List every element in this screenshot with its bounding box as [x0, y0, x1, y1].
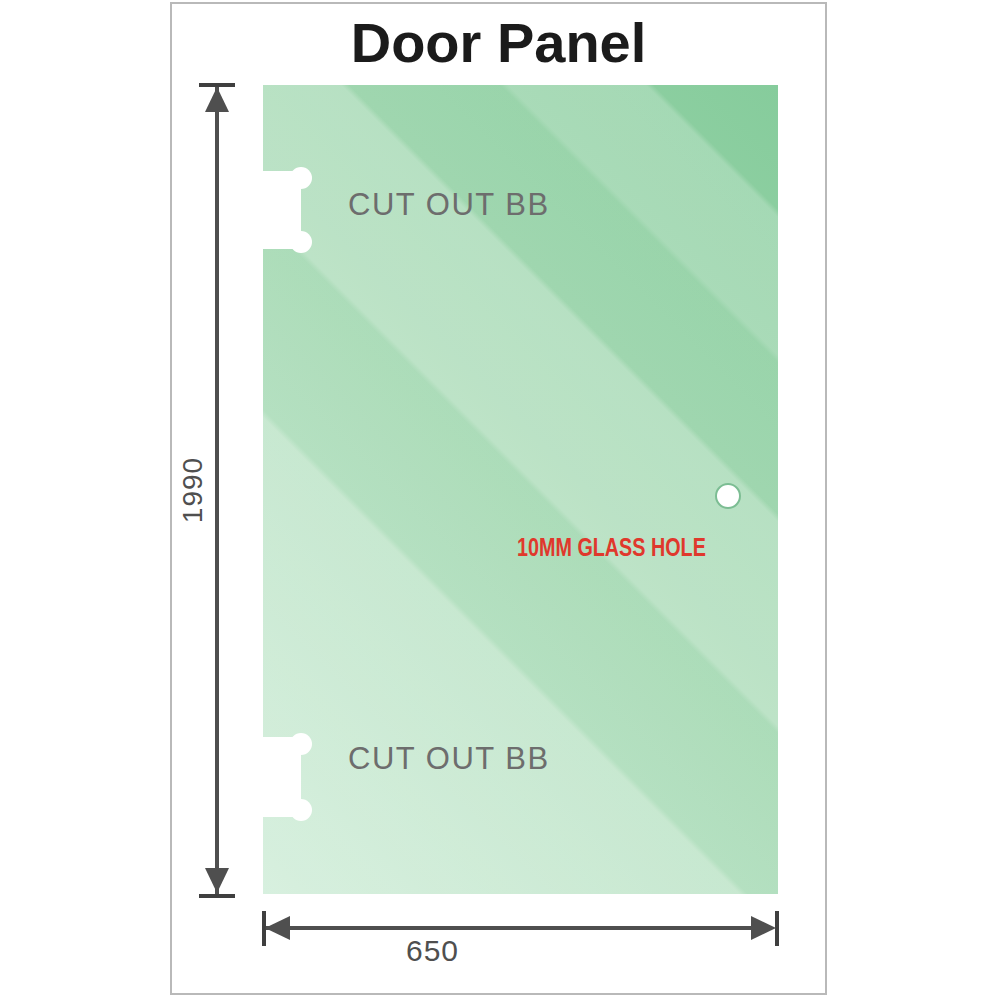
up-arrowhead-icon — [205, 87, 229, 112]
down-arrowhead-icon — [205, 868, 229, 893]
hinge-cutout-top — [261, 171, 301, 249]
glass-hole — [715, 483, 741, 509]
product-drawing: Door Panel CUT OUT BB CUT OUT BB 10MM GL… — [0, 0, 1000, 1000]
glass-panel: CUT OUT BB CUT OUT BB 10MM GLASS HOLE — [263, 85, 778, 894]
height-dim-line — [215, 85, 219, 895]
right-arrowhead-icon — [751, 916, 776, 940]
cutout-label-bottom: CUT OUT BB — [348, 743, 550, 774]
hinge-cutout-bottom — [261, 737, 301, 817]
height-dim-tick-bottom — [199, 894, 235, 898]
cutout-slab — [261, 737, 301, 817]
height-dim-label: 1990 — [179, 457, 207, 523]
cutout-slab — [261, 171, 301, 249]
page-title: Door Panel — [170, 12, 827, 74]
cutout-label-top: CUT OUT BB — [348, 189, 550, 220]
glass-hole-label: 10MM GLASS HOLE — [517, 534, 706, 560]
width-dim-label: 650 — [406, 936, 459, 966]
width-dim-line — [266, 926, 760, 930]
left-arrowhead-icon — [265, 916, 290, 940]
